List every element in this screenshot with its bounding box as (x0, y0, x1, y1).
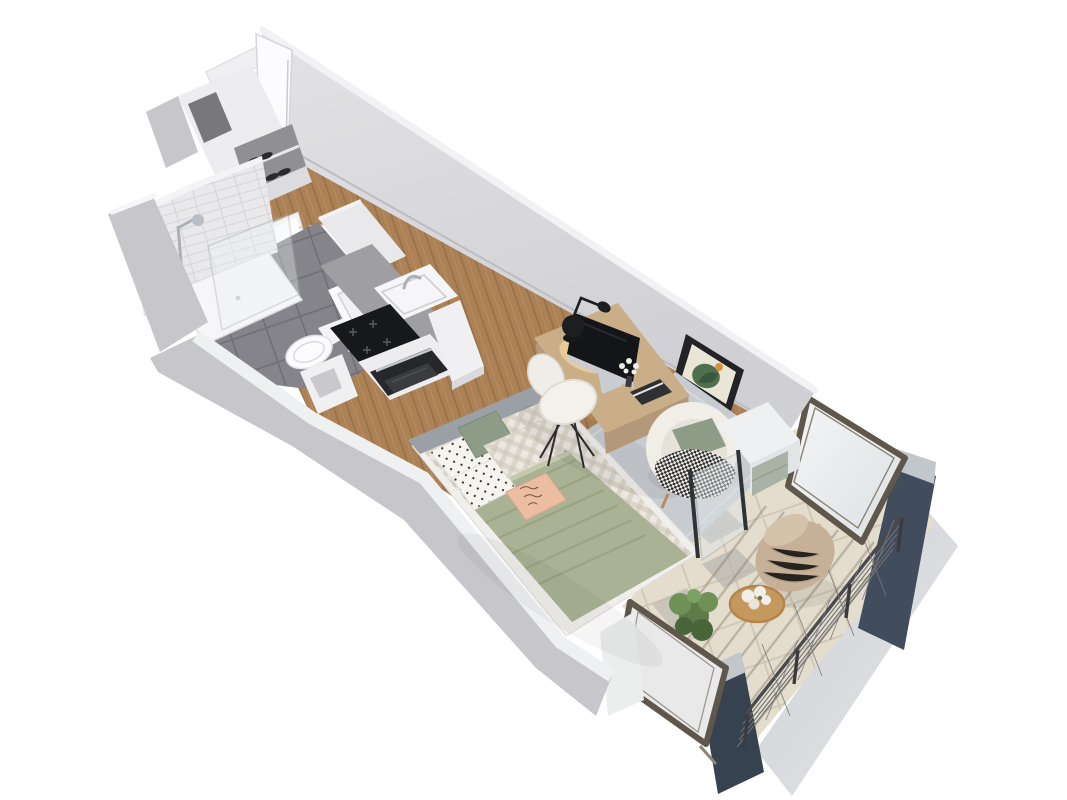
shower-head (192, 214, 204, 226)
coffee-table (730, 586, 784, 622)
floor-plan-render (0, 0, 1067, 800)
apartment-isometric-scene (0, 0, 1067, 800)
